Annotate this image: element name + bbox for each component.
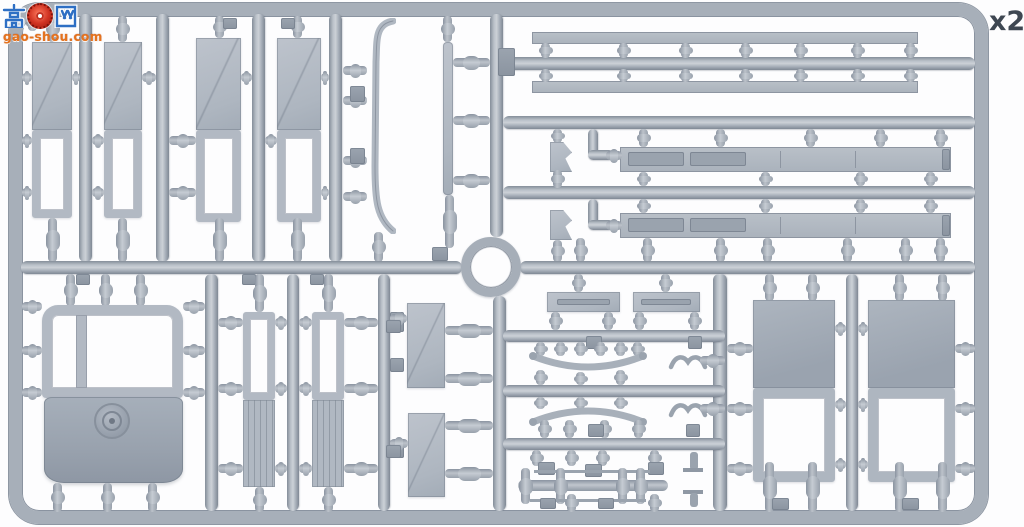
sprue-gate bbox=[619, 43, 628, 58]
sprue-gate bbox=[858, 460, 868, 469]
sprue-gate bbox=[101, 274, 110, 306]
sprue-gate bbox=[521, 468, 530, 504]
ladder-panel-2-deck bbox=[312, 400, 344, 487]
sprue-gate bbox=[565, 420, 574, 438]
hull-panel-2-frame bbox=[104, 130, 142, 218]
sprue-gate bbox=[856, 172, 865, 186]
sprue-gate bbox=[218, 464, 243, 473]
sprue-gate bbox=[700, 356, 725, 365]
sprue-gate bbox=[265, 136, 277, 145]
sprue-gate bbox=[843, 238, 852, 262]
sprue-gate bbox=[275, 384, 287, 393]
sprue-gate bbox=[453, 116, 490, 125]
sprue-gate bbox=[453, 176, 490, 185]
molding-pad bbox=[688, 336, 702, 349]
sprue-gate bbox=[606, 221, 622, 230]
girder-slot bbox=[628, 152, 684, 166]
girder-seam bbox=[855, 151, 856, 168]
sprue-gate bbox=[808, 274, 817, 301]
sprue-gate bbox=[567, 450, 576, 466]
sprue-gate bbox=[926, 172, 935, 186]
sprue-gate bbox=[681, 43, 690, 58]
sprue-gate bbox=[955, 404, 975, 413]
sprue-gate bbox=[700, 404, 725, 413]
sprue-gate bbox=[858, 400, 868, 409]
sprue-gate bbox=[576, 372, 585, 385]
sprue-gate bbox=[218, 384, 243, 393]
sprue-gate bbox=[955, 464, 975, 473]
sprue-gate bbox=[634, 420, 643, 438]
sprue-gate bbox=[876, 129, 885, 147]
sprue-gate bbox=[761, 172, 770, 186]
runner bbox=[287, 274, 299, 511]
sprue-gate bbox=[635, 312, 644, 330]
bracket-plate-2 bbox=[633, 292, 700, 312]
runner bbox=[493, 296, 506, 511]
watermark-badge-icon bbox=[27, 3, 53, 29]
sprue-gate bbox=[275, 318, 287, 327]
runner bbox=[205, 274, 218, 511]
sprue-gate bbox=[853, 69, 862, 82]
sprue-gate bbox=[567, 494, 576, 512]
girder-seam bbox=[780, 151, 781, 168]
runner bbox=[252, 14, 265, 262]
molding-pad bbox=[242, 274, 256, 285]
molding-pad bbox=[76, 274, 90, 285]
bracket-plate-1 bbox=[547, 292, 620, 312]
girder-slot bbox=[690, 218, 746, 232]
sprue-gate bbox=[690, 312, 699, 330]
sprue-gate bbox=[445, 469, 493, 478]
sprue-gate bbox=[183, 388, 205, 397]
watermark-domain: gao-shou.com bbox=[3, 30, 103, 44]
plate-slot bbox=[641, 299, 691, 305]
sprue-gate bbox=[299, 464, 312, 473]
sprue-gate bbox=[255, 274, 264, 312]
sprue-gate bbox=[906, 43, 915, 58]
sprue-gate bbox=[324, 487, 333, 512]
sprue-gate bbox=[906, 69, 915, 82]
sprue-gate bbox=[938, 462, 947, 512]
ladder-panel-1-deck bbox=[243, 400, 275, 487]
tub-boss bbox=[94, 403, 130, 439]
thin-bar-part bbox=[443, 42, 453, 195]
sprue-gate bbox=[66, 274, 75, 306]
sprue-gate bbox=[118, 16, 127, 42]
deck-plate-1 bbox=[407, 303, 445, 388]
sprue-gate bbox=[22, 346, 42, 355]
sprue-gate bbox=[343, 192, 367, 201]
sprue-gate bbox=[183, 302, 205, 311]
sprue-gate bbox=[92, 188, 104, 197]
sprue-gate bbox=[374, 232, 383, 262]
sprue-gate bbox=[299, 318, 312, 327]
sprue-gate bbox=[681, 69, 690, 82]
molding-pad bbox=[902, 498, 919, 510]
sprue-gate bbox=[453, 58, 490, 67]
sprue-gate bbox=[169, 188, 196, 197]
sprue-gate bbox=[806, 129, 815, 147]
sprue-gate bbox=[639, 172, 648, 186]
rail-strip-top bbox=[532, 32, 918, 44]
sprue-gate bbox=[553, 129, 562, 143]
molding-pad bbox=[588, 424, 604, 437]
cab-frame-divider bbox=[76, 315, 87, 388]
sprue-gate bbox=[765, 274, 774, 301]
sprue-gate bbox=[445, 421, 493, 430]
sprue-gate bbox=[650, 494, 659, 512]
runner bbox=[503, 186, 975, 199]
sprue-gate bbox=[761, 199, 770, 213]
sprue-gate bbox=[321, 188, 329, 197]
runner bbox=[79, 14, 92, 262]
sprue-gate bbox=[901, 238, 910, 262]
sprue-gate bbox=[321, 73, 329, 82]
molding-pad bbox=[648, 462, 664, 475]
sprue-gate bbox=[53, 483, 62, 512]
hull-panel-1-top bbox=[32, 42, 72, 130]
tie-rod-1 bbox=[534, 470, 650, 473]
sprue-gate bbox=[741, 43, 750, 58]
sprue-gate bbox=[324, 274, 333, 312]
sprue-gate bbox=[604, 312, 613, 330]
sprue-gate bbox=[936, 129, 945, 147]
molding-pad bbox=[538, 462, 555, 475]
sprue-gate bbox=[716, 129, 725, 147]
plate-slot bbox=[557, 299, 610, 305]
rail-strip-bottom bbox=[532, 81, 918, 93]
sprue-gate bbox=[22, 388, 42, 397]
sprue-gate bbox=[299, 384, 312, 393]
sprue-gate bbox=[344, 384, 378, 393]
sprue-gate bbox=[661, 274, 670, 292]
sprue-gate bbox=[808, 462, 817, 512]
sprue-gate bbox=[576, 238, 585, 262]
girder-end bbox=[942, 215, 950, 236]
molding-pad bbox=[390, 358, 404, 372]
sprue-gate bbox=[218, 318, 243, 327]
sprue-gate bbox=[835, 460, 846, 469]
sprue-gate bbox=[796, 43, 805, 58]
sprue-gate bbox=[541, 43, 550, 58]
girder-slot bbox=[628, 218, 684, 232]
sprue-gate bbox=[835, 400, 846, 409]
runner bbox=[21, 261, 462, 274]
molding-pad bbox=[772, 498, 789, 510]
sprue-gate bbox=[148, 483, 157, 512]
runner bbox=[503, 116, 975, 129]
hull-panel-3-frame bbox=[196, 130, 241, 222]
sprue-gate bbox=[616, 370, 625, 385]
sprue-gate bbox=[796, 69, 805, 82]
cab-window-frame bbox=[42, 305, 183, 398]
watermark-char-wang bbox=[54, 4, 78, 28]
runner bbox=[520, 261, 975, 274]
side-panel-left-top bbox=[753, 300, 835, 388]
hull-panel-1-frame bbox=[32, 130, 72, 218]
quantity-badge: x2 bbox=[989, 6, 1024, 37]
runner bbox=[503, 438, 725, 450]
molding-pad bbox=[350, 148, 365, 164]
sprue-gate bbox=[275, 464, 287, 473]
molding-pad bbox=[432, 247, 448, 261]
girder-end bbox=[942, 149, 950, 170]
sprue-gate bbox=[716, 238, 725, 262]
sprue-gate bbox=[22, 188, 32, 197]
molding-pad bbox=[686, 424, 700, 437]
sprue-gate bbox=[643, 238, 652, 262]
sprue-gate bbox=[92, 136, 104, 145]
sprue-gate bbox=[727, 464, 753, 473]
sprue-gate bbox=[22, 302, 42, 311]
sprue-gate bbox=[763, 238, 772, 262]
chassis-girder-upper bbox=[620, 147, 951, 172]
side-panel-right-top bbox=[868, 300, 955, 388]
runner bbox=[846, 274, 858, 511]
sprue-photo: gao-shou.com x2 bbox=[0, 0, 1024, 527]
hull-panel-2-top bbox=[104, 42, 142, 130]
sprue-gate bbox=[727, 404, 753, 413]
sprue-gate bbox=[553, 240, 562, 262]
sprue-gate bbox=[619, 69, 628, 82]
molding-pad bbox=[310, 274, 324, 285]
runner bbox=[156, 14, 169, 262]
sprue-gate bbox=[553, 170, 562, 188]
sprue-gate bbox=[48, 218, 57, 262]
molding-pad bbox=[386, 445, 401, 458]
sprue-gate bbox=[118, 218, 127, 262]
sprue-gate bbox=[606, 151, 622, 160]
sprue-gate bbox=[169, 136, 196, 145]
sprue-gate bbox=[639, 129, 648, 147]
runner bbox=[503, 385, 725, 397]
chassis-girder-lower bbox=[620, 213, 951, 238]
sprue-gate bbox=[835, 324, 846, 333]
ladder-panel-1-frame bbox=[243, 312, 275, 400]
molding-pad bbox=[350, 86, 365, 102]
sprue-gate bbox=[344, 318, 378, 327]
hull-panel-3-top bbox=[196, 38, 241, 130]
sprue-gate bbox=[445, 326, 493, 335]
t-bracket-bar bbox=[683, 468, 703, 472]
runner bbox=[329, 14, 342, 262]
sprue-gate bbox=[183, 346, 205, 355]
tub-boss-center bbox=[109, 418, 115, 424]
deck-plate-2 bbox=[408, 413, 445, 497]
sprue-gate bbox=[72, 73, 80, 82]
hull-panel-4-top bbox=[277, 38, 321, 130]
molding-pad bbox=[223, 18, 237, 29]
sprue-gate bbox=[639, 199, 648, 213]
molding-pad bbox=[386, 320, 401, 333]
sprue-gate bbox=[293, 218, 302, 262]
sprue-gate bbox=[536, 370, 545, 385]
sprue-gate bbox=[103, 483, 112, 512]
sprue-gate bbox=[344, 464, 378, 473]
sprue-gate bbox=[136, 274, 145, 306]
t-bracket-stem bbox=[690, 493, 698, 507]
cab-tub bbox=[44, 397, 183, 483]
sprue-gate bbox=[443, 16, 452, 42]
sprue-gate bbox=[895, 274, 904, 301]
sprue-gate bbox=[22, 73, 32, 82]
sprue-gate bbox=[445, 374, 493, 383]
watermark-char-gao bbox=[2, 4, 26, 28]
sprue-gate bbox=[22, 136, 32, 145]
hull-panel-4-frame bbox=[277, 130, 321, 222]
sprue-gate bbox=[215, 218, 224, 262]
fender-strip-part bbox=[362, 18, 396, 234]
molding-pad bbox=[598, 498, 614, 509]
molding-pad bbox=[498, 48, 515, 76]
sprue-gate bbox=[936, 238, 945, 262]
sprue-gate bbox=[541, 69, 550, 82]
sprue-gate bbox=[445, 195, 454, 248]
sprue-gate bbox=[858, 324, 868, 333]
sprue-gate bbox=[856, 199, 865, 213]
sprue-gate bbox=[926, 199, 935, 213]
sprue-gate bbox=[343, 66, 367, 75]
sprue-gate bbox=[540, 420, 549, 438]
sprue-gate bbox=[853, 43, 862, 58]
molding-pad bbox=[281, 18, 295, 29]
sprue-gate bbox=[142, 73, 156, 82]
girder-seam bbox=[855, 217, 856, 234]
ladder-panel-2-frame bbox=[312, 312, 344, 400]
girder-seam bbox=[780, 217, 781, 234]
runner bbox=[503, 57, 975, 70]
sprue-ring bbox=[461, 237, 521, 297]
sprue-gate bbox=[551, 312, 560, 330]
sprue-gate bbox=[241, 73, 252, 82]
sprue-gate bbox=[574, 274, 583, 292]
sprue-gate bbox=[727, 344, 753, 353]
sprue-gate bbox=[938, 274, 947, 301]
sprue-gate bbox=[255, 487, 264, 512]
sprue-gate bbox=[955, 344, 975, 353]
sprue-gate bbox=[741, 69, 750, 82]
watermark-logo bbox=[2, 3, 78, 29]
molding-pad bbox=[540, 498, 556, 509]
girder-slot bbox=[690, 152, 746, 166]
runner bbox=[378, 274, 390, 511]
